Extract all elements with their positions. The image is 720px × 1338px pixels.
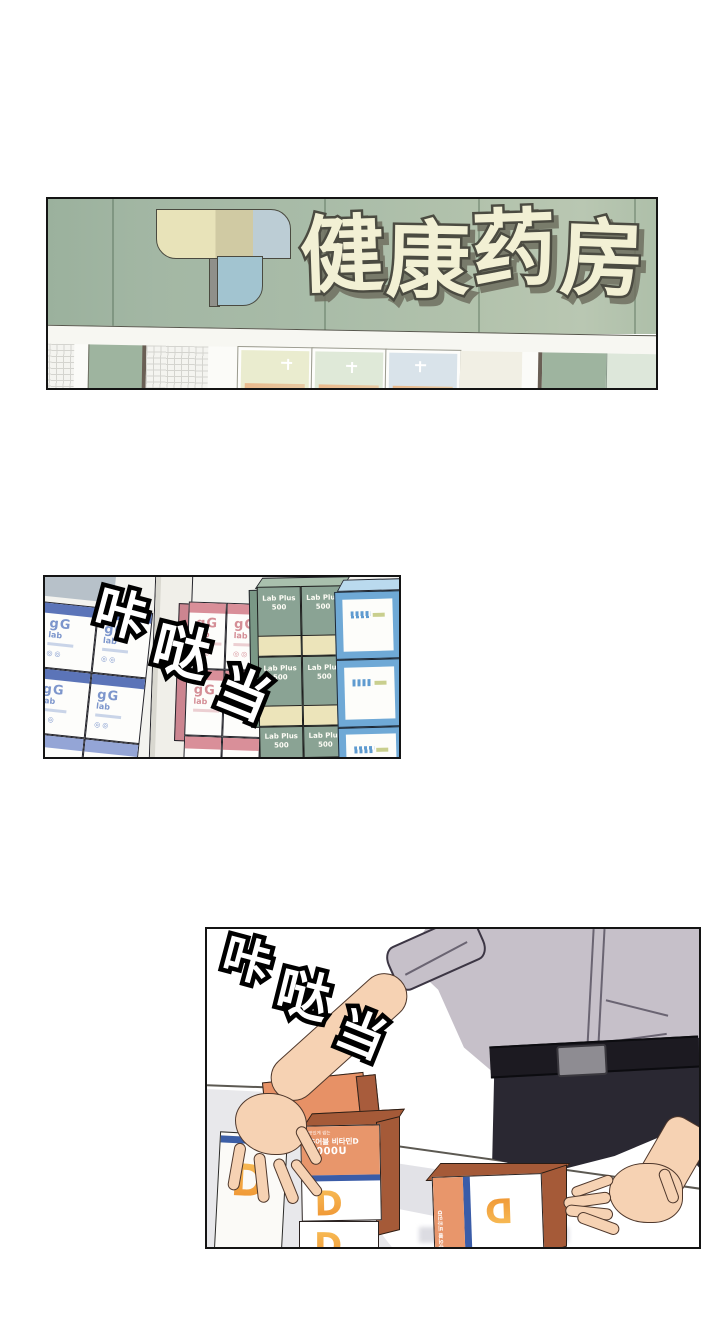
box-label [346,733,397,759]
medicine-box-blue [334,590,401,660]
medicine-box-gglab-blue: gGlab◎◎ [85,673,147,744]
belt-buckle [556,1044,608,1078]
medicine-box-labplus: Lab Plus500 [257,586,302,657]
box-label [342,598,393,651]
shop-wall [460,351,523,390]
medicine-box-blue [336,658,401,728]
vitamin-box-below: D [299,1221,379,1249]
pharmacy-sign-title: 健健康康药药房房 [300,205,652,330]
panel-storefront: 健健康康药药房房 [46,197,658,390]
wall [74,344,89,389]
blue-logo-icon [354,746,374,754]
shelf-stack-lightblue-boxes [334,578,401,749]
glass-door [606,353,658,390]
medicine-box-small [183,735,222,759]
medicine-box-small [221,737,260,759]
box-header-flipped: 츄어블 비타민D [433,1177,466,1249]
comic-page: 健健康康药药房房 gGlab◎◎ [0,0,720,1338]
shop-window [386,350,461,390]
green-pillar [88,344,144,390]
sign-seam [112,199,114,334]
green-logo-mark-icon [374,681,386,685]
distant-building [46,344,74,390]
green-logo-mark-icon [376,748,388,752]
pharmacy-cross-logo-bar [156,209,291,259]
panel-counter: 3000U D 맛있게 씹는 츄어블 비타민D 3000U D D 츄어블 비타… [205,927,701,1249]
vitamin-d-logo: D [314,1226,342,1249]
medicine-box-gglab-blue: gGlab◎◎ [43,667,92,738]
cert-circles-icon: ◎◎ [43,716,86,728]
pharmacy-sign-board: 健健康康药药房房 [48,199,656,334]
shop-window [312,348,387,390]
pharmacy-cross-logo-stem [217,256,263,306]
wall [208,346,239,390]
green-logo-mark-icon [373,613,385,617]
cert-circles-icon: ◎◎ [94,721,140,733]
green-pillar [542,352,607,390]
vitamin-box-flipped: 츄어블 비타민D D [432,1173,545,1249]
shop-window [238,347,313,390]
box-label [344,666,395,719]
cert-circles-icon: ◎◎ [101,656,147,668]
cert-circles-icon: ◎◎ [46,650,92,662]
blue-logo-icon [351,611,371,619]
medicine-box-blue [338,726,401,759]
medicine-box-labplus: Lab Plus500 [259,726,304,759]
wall [522,352,539,390]
distant-building [146,345,209,390]
vitamin-d-logo: D [484,1189,514,1230]
blue-logo-icon [352,679,372,687]
panel-shelf: gGlab◎◎ gGlab◎◎ gGlab◎◎ gGlab◎◎ [43,575,401,759]
